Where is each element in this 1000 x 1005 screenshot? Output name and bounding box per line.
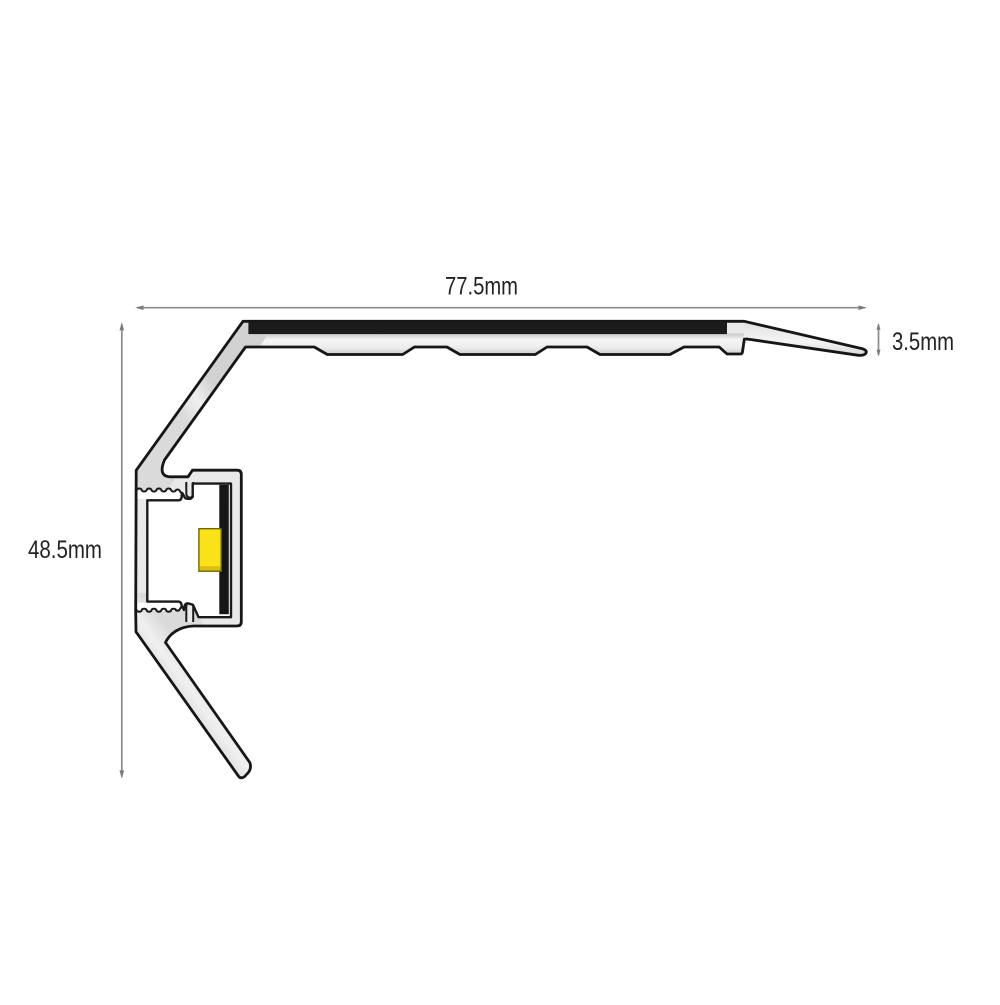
svg-text:77.5mm: 77.5mm bbox=[445, 274, 518, 301]
svg-text:3.5mm: 3.5mm bbox=[892, 329, 954, 356]
svg-text:48.5mm: 48.5mm bbox=[28, 537, 102, 564]
